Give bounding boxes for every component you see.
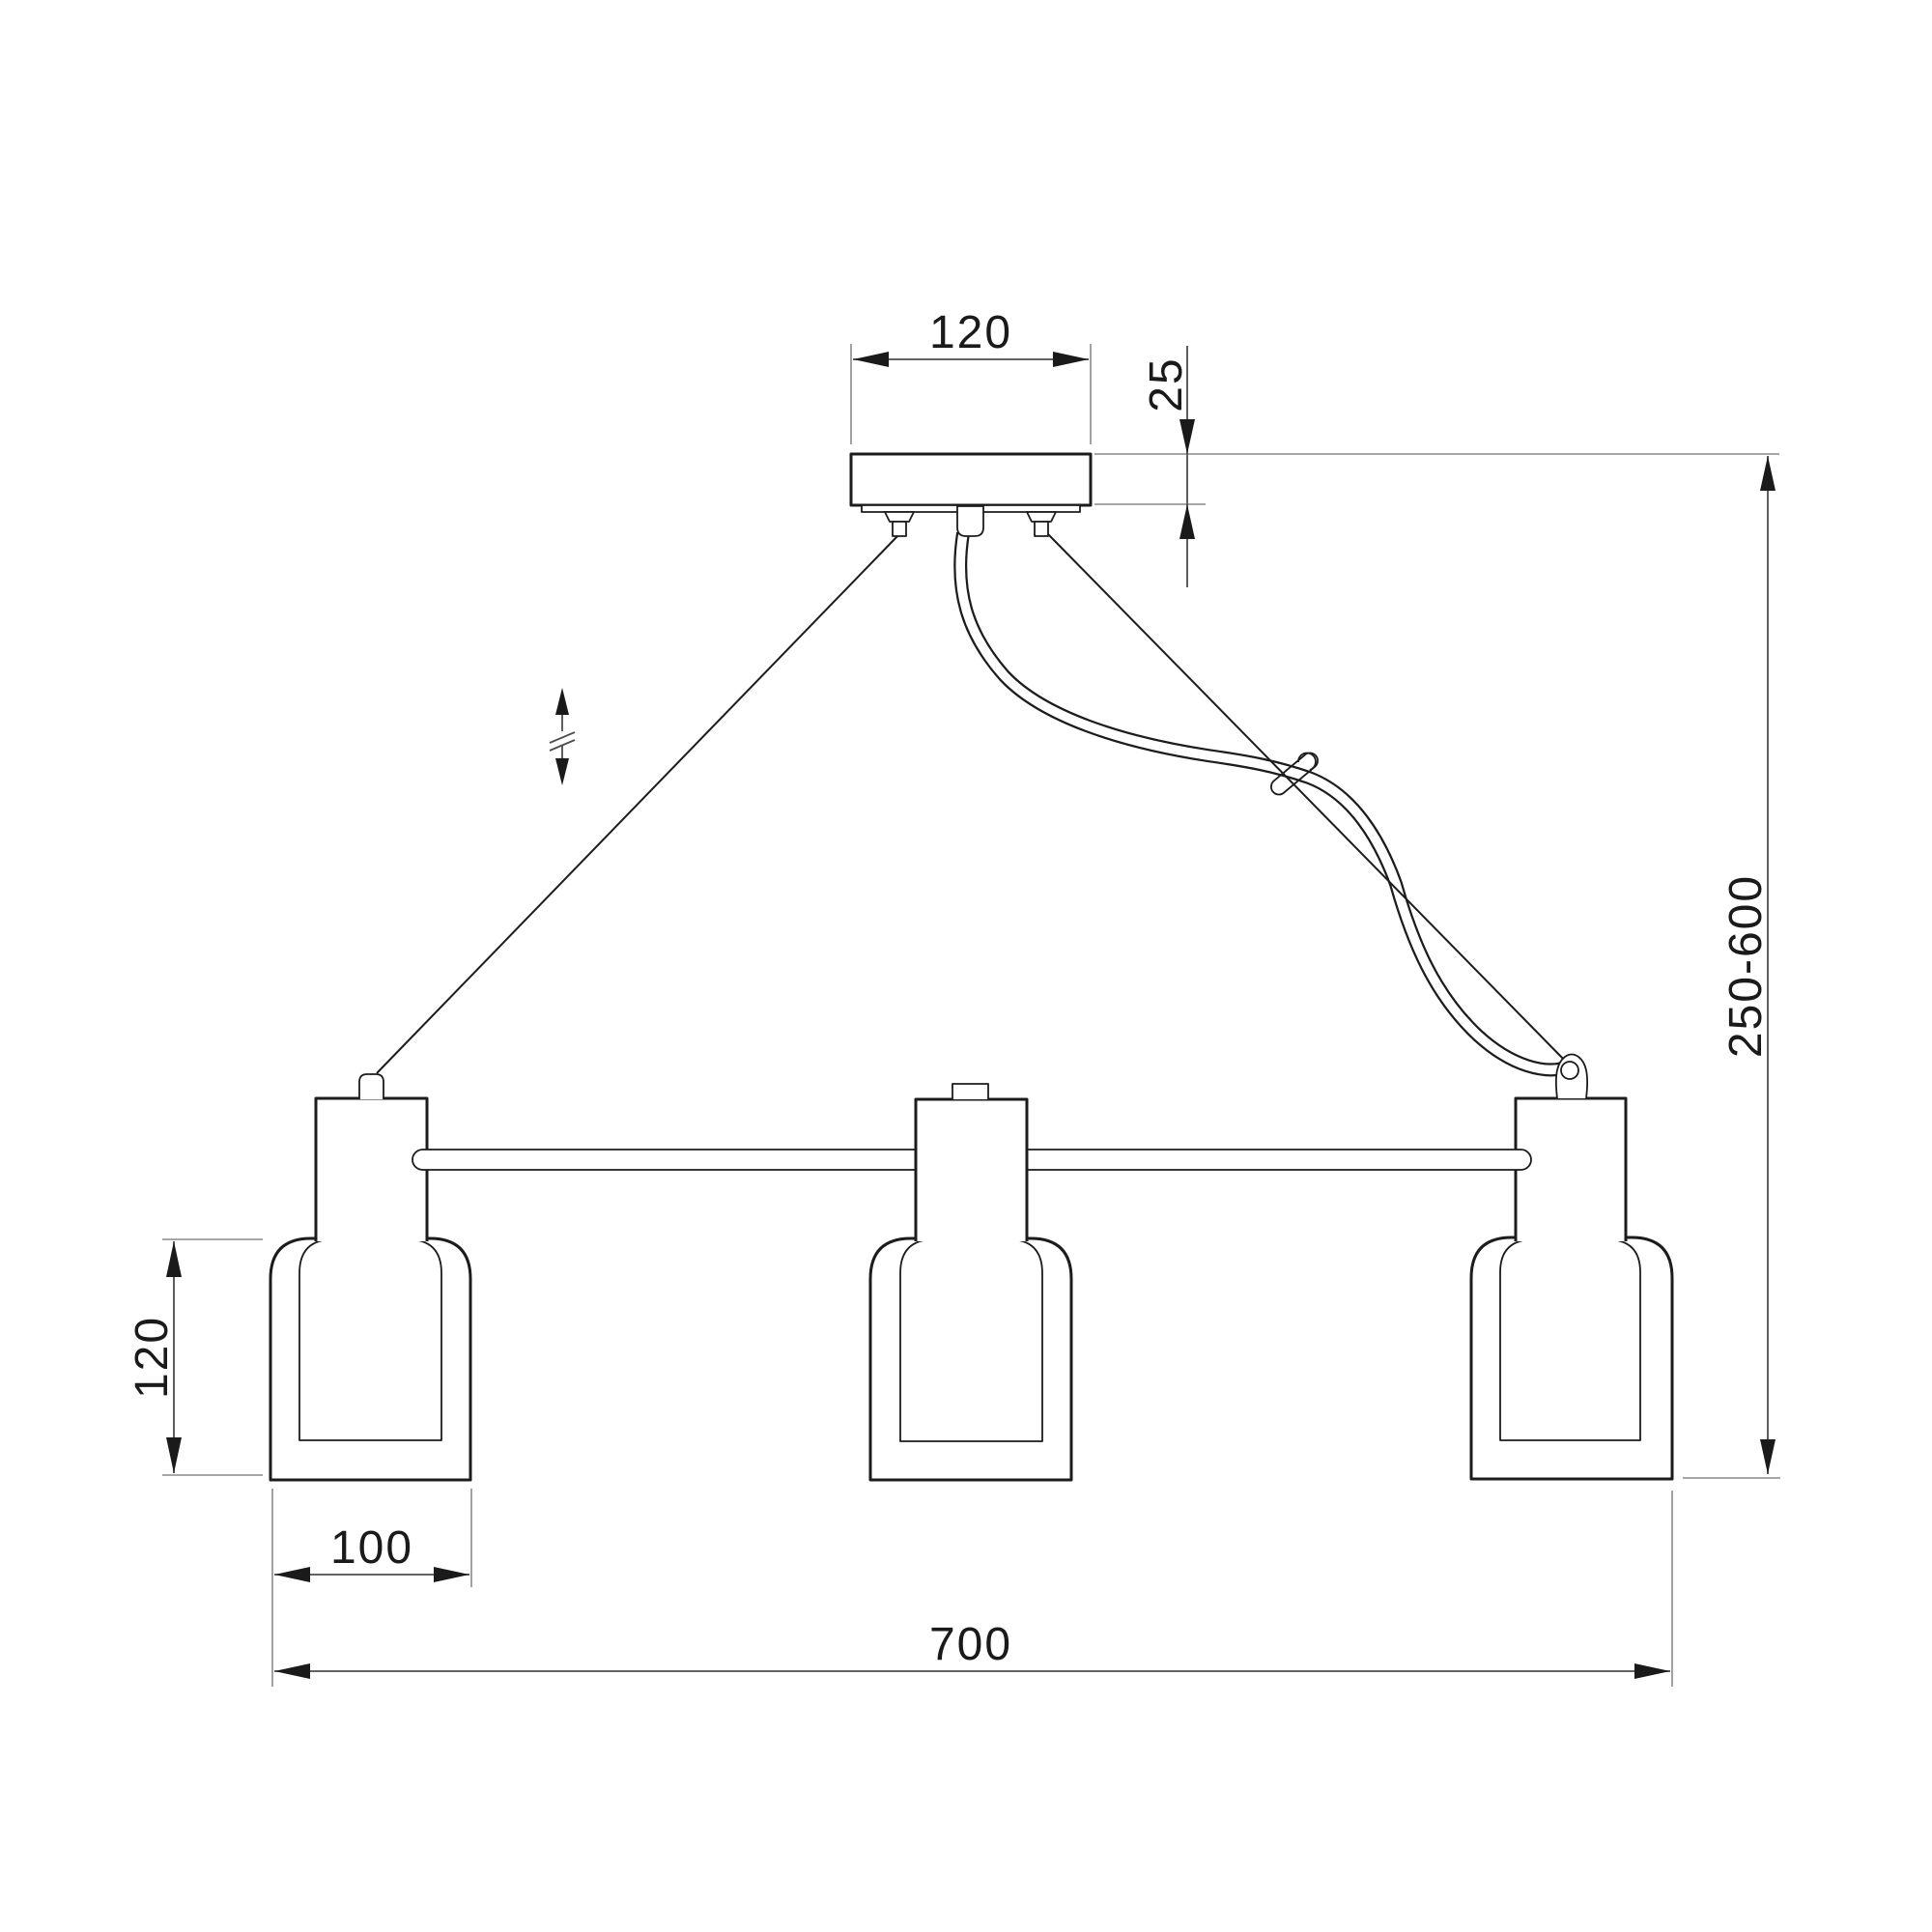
dimension-canopy-width: 120 bbox=[851, 307, 1091, 444]
cable-outline bbox=[960, 533, 1566, 1069]
dimension-shade-width: 100 bbox=[272, 1489, 471, 1687]
dimension-suspension-range: 250-600 bbox=[1683, 456, 1780, 1478]
canopy-width-label: 120 bbox=[929, 307, 1012, 358]
arrowhead-up-icon bbox=[166, 1241, 182, 1277]
right-lamp-holder bbox=[1516, 1098, 1626, 1241]
canopy-depth-label: 25 bbox=[1141, 356, 1192, 412]
clip-curl bbox=[1298, 753, 1316, 770]
shade-height-label: 120 bbox=[127, 1316, 178, 1399]
arrowhead-right-icon bbox=[1053, 352, 1089, 367]
center-nipple bbox=[952, 1084, 988, 1099]
arrowhead-right-icon bbox=[1634, 1663, 1670, 1679]
right-nipple-stem bbox=[1035, 522, 1048, 536]
arrowhead-down-icon bbox=[166, 1437, 182, 1473]
left-nipple-stem bbox=[893, 522, 906, 536]
ceiling-canopy bbox=[851, 454, 1091, 536]
technical-drawing-page: 120 25 250-600 120 100 700 bbox=[0, 0, 1932, 1932]
arrowhead-left-icon bbox=[274, 1567, 310, 1582]
cable-core bbox=[960, 533, 1566, 1069]
dimension-canopy-depth: 25 bbox=[1094, 346, 1779, 587]
arrowhead-down-icon bbox=[1760, 1439, 1776, 1474]
right-suspension-wire bbox=[1048, 534, 1569, 1065]
canopy-body bbox=[851, 454, 1091, 505]
center-lamp-holder bbox=[916, 1099, 1027, 1241]
left-suspension-wire bbox=[377, 534, 899, 1073]
arrowhead-left-icon bbox=[853, 352, 889, 367]
arrowhead-down-icon bbox=[1179, 419, 1195, 454]
arrowhead-up-icon bbox=[1760, 456, 1776, 491]
left-nipple-flange bbox=[885, 512, 914, 522]
arrowhead-up-icon bbox=[1179, 504, 1195, 539]
dimension-shade-height: 120 bbox=[127, 1239, 263, 1475]
cable-gland bbox=[957, 506, 983, 536]
height-adjust-icon bbox=[550, 688, 575, 785]
left-lamp-holder bbox=[316, 1098, 427, 1241]
shade-width-label: 100 bbox=[330, 1522, 413, 1574]
right-nipple-flange bbox=[1027, 512, 1056, 522]
power-cable bbox=[960, 533, 1566, 1069]
left-shade-glass bbox=[299, 1239, 441, 1440]
center-shade-glass bbox=[900, 1239, 1042, 1441]
hook-eyelet bbox=[1561, 1062, 1578, 1079]
arrowhead-right-icon bbox=[434, 1567, 469, 1582]
arrowhead-left-icon bbox=[274, 1663, 310, 1679]
right-shade-glass bbox=[1500, 1239, 1640, 1440]
dimension-overall-width: 700 bbox=[274, 1491, 1672, 1687]
suspension-range-label: 250-600 bbox=[1720, 874, 1772, 1058]
overall-width-label: 700 bbox=[929, 1619, 1012, 1670]
lamp-fittings bbox=[359, 1055, 1587, 1100]
pendant-lamp-dimension-drawing: 120 25 250-600 120 100 700 bbox=[0, 0, 1932, 1932]
lamp-shades bbox=[270, 1237, 1672, 1480]
left-wire-nipple bbox=[359, 1074, 384, 1099]
